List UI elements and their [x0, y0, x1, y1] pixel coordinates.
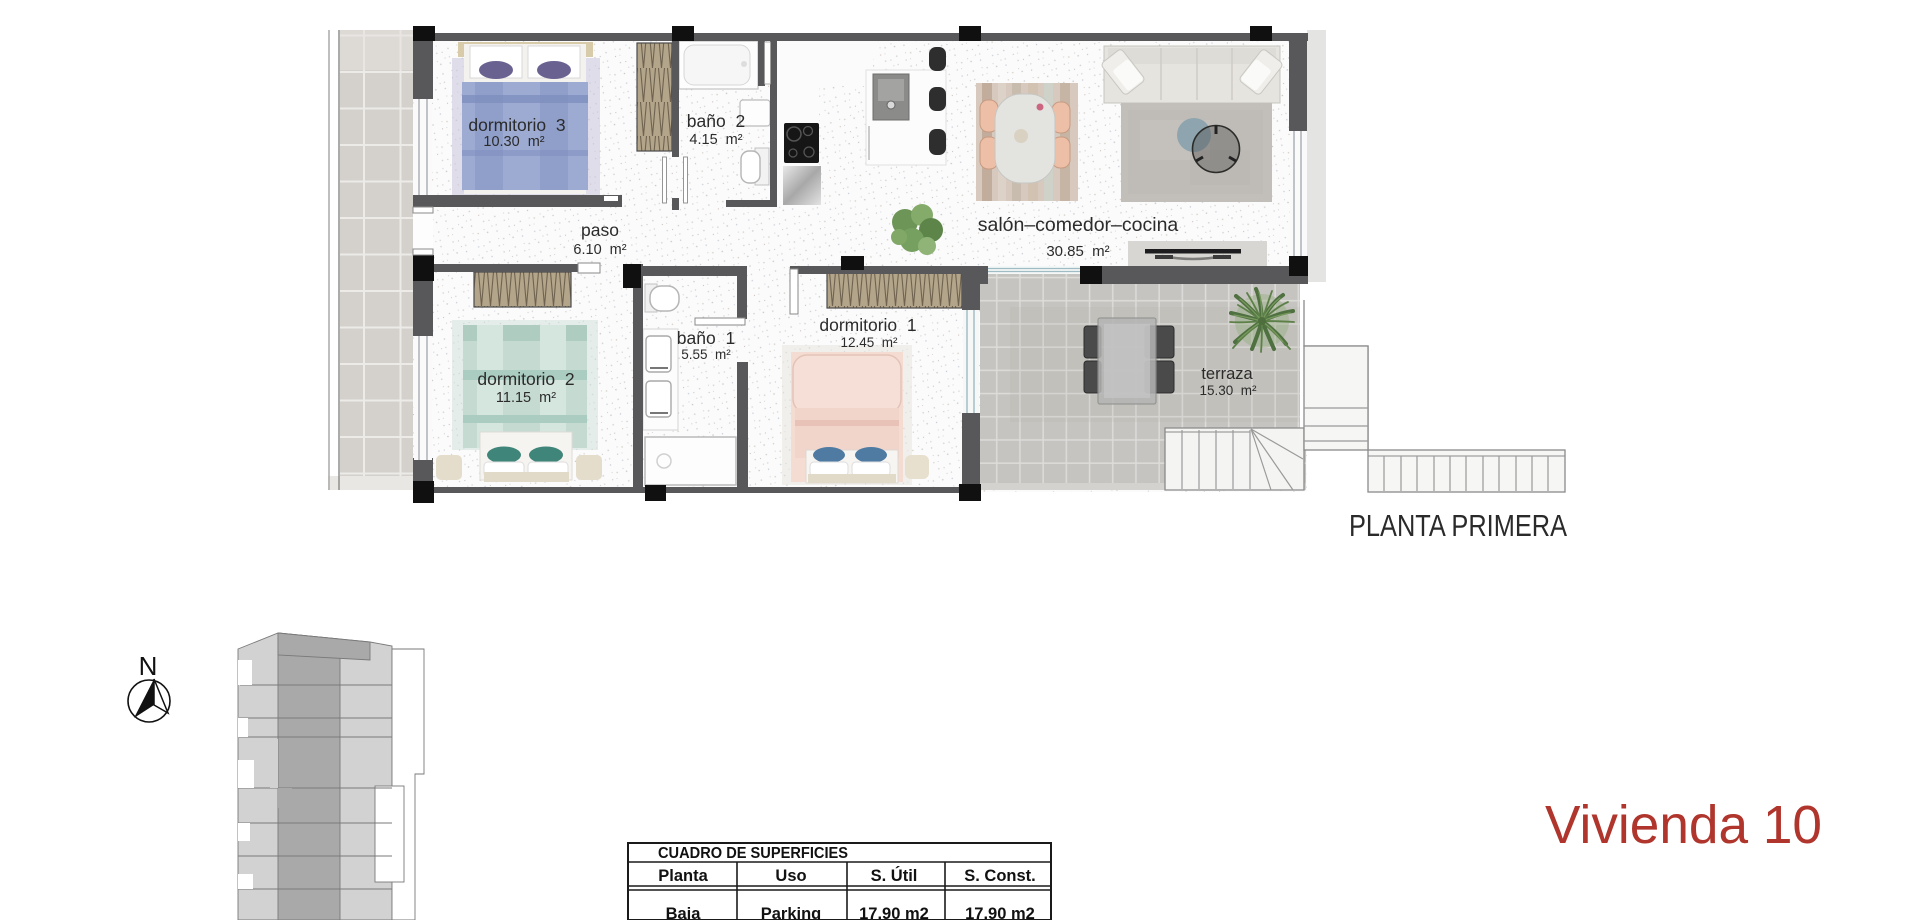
svg-text:6.10 m²: 6.10 m²	[573, 242, 626, 258]
svg-text:Vivienda 10: Vivienda 10	[1545, 795, 1822, 855]
svg-text:PLANTA PRIMERA: PLANTA PRIMERA	[1349, 508, 1567, 543]
svg-text:N: N	[139, 651, 158, 681]
svg-text:dormitorio 1: dormitorio 1	[819, 315, 916, 335]
svg-text:terraza: terraza	[1201, 365, 1253, 383]
svg-text:Planta: Planta	[658, 867, 708, 885]
svg-text:salón–comedor–cocina: salón–comedor–cocina	[978, 214, 1179, 236]
svg-text:paso: paso	[581, 220, 619, 240]
svg-text:17.90 m2: 17.90 m2	[965, 905, 1035, 920]
svg-text:30.85 m²: 30.85 m²	[1046, 243, 1109, 260]
svg-text:10.30 m²: 10.30 m²	[483, 134, 544, 150]
svg-text:Baja: Baja	[666, 905, 702, 920]
svg-text:Uso: Uso	[775, 867, 806, 885]
svg-text:12.45 m²: 12.45 m²	[840, 335, 898, 350]
svg-text:11.15 m²: 11.15 m²	[496, 390, 556, 406]
svg-text:S. Útil: S. Útil	[871, 866, 918, 885]
svg-text:5.55 m²: 5.55 m²	[681, 347, 731, 362]
svg-text:17.90 m2: 17.90 m2	[859, 905, 929, 920]
svg-text:dormitorio 3: dormitorio 3	[468, 115, 565, 135]
svg-text:Parking: Parking	[761, 905, 822, 920]
svg-text:dormitorio 2: dormitorio 2	[477, 369, 574, 389]
svg-text:4.15 m²: 4.15 m²	[689, 132, 742, 148]
svg-text:15.30 m²: 15.30 m²	[1199, 383, 1257, 398]
svg-text:baño 2: baño 2	[687, 111, 745, 131]
svg-text:baño 1: baño 1	[677, 328, 735, 348]
svg-text:S. Const.: S. Const.	[964, 867, 1036, 885]
svg-text:CUADRO DE SUPERFICIES: CUADRO DE SUPERFICIES	[658, 845, 848, 862]
